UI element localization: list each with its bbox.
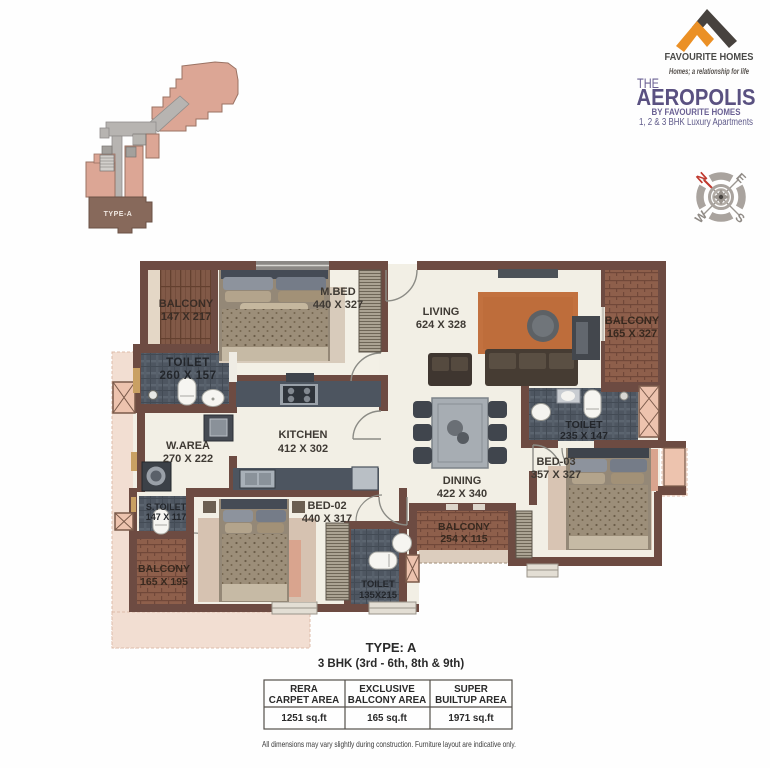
svg-text:FAVOURITE HOMES: FAVOURITE HOMES [665, 52, 754, 63]
svg-text:260 X 157: 260 X 157 [160, 370, 217, 382]
svg-text:CARPET AREA: CARPET AREA [269, 695, 339, 706]
svg-text:440 X 327: 440 X 327 [313, 299, 363, 311]
svg-text:LIVING: LIVING [423, 306, 460, 318]
svg-text:1, 2 & 3 BHK Luxury Apartments: 1, 2 & 3 BHK Luxury Apartments [639, 117, 753, 128]
svg-text:1971 sq.ft: 1971 sq.ft [448, 713, 494, 724]
svg-text:440 X 317: 440 X 317 [302, 513, 352, 525]
svg-text:357 X 327: 357 X 327 [531, 469, 581, 481]
svg-text:Homes; a relationship for life: Homes; a relationship for life [669, 66, 749, 76]
svg-text:TYPE: A: TYPE: A [366, 640, 417, 655]
svg-text:BALCONY: BALCONY [438, 521, 490, 533]
svg-text:SUPER: SUPER [454, 684, 488, 695]
svg-text:TYPE-A: TYPE-A [104, 211, 133, 218]
svg-text:422 X 340: 422 X 340 [437, 488, 487, 500]
svg-text:165 sq.ft: 165 sq.ft [367, 713, 407, 724]
svg-text:BUILTUP AREA: BUILTUP AREA [435, 695, 507, 706]
svg-text:RERA: RERA [290, 684, 318, 695]
svg-text:165 X 195: 165 X 195 [140, 576, 188, 588]
svg-text:All dimensions may vary slight: All dimensions may vary slightly during … [262, 739, 516, 749]
svg-text:147 X 117: 147 X 117 [146, 512, 187, 522]
svg-text:165 X 327: 165 X 327 [607, 328, 657, 340]
svg-text:BALCONY: BALCONY [605, 315, 660, 327]
svg-text:254 X 115: 254 X 115 [440, 533, 487, 545]
svg-text:W.AREA: W.AREA [166, 440, 210, 452]
svg-text:412 X 302: 412 X 302 [278, 443, 328, 455]
svg-text:135X215: 135X215 [359, 590, 398, 601]
svg-text:235 X 147: 235 X 147 [560, 430, 608, 442]
svg-text:KITCHEN: KITCHEN [279, 429, 328, 441]
svg-text:3 BHK (3rd - 6th, 8th & 9th): 3 BHK (3rd - 6th, 8th & 9th) [318, 658, 464, 670]
svg-text:EXCLUSIVE: EXCLUSIVE [359, 684, 415, 695]
svg-text:BALCONY AREA: BALCONY AREA [348, 695, 426, 706]
svg-text:624 X 328: 624 X 328 [416, 319, 466, 331]
svg-text:S.TOILET: S.TOILET [146, 502, 187, 512]
svg-text:1251 sq.ft: 1251 sq.ft [281, 713, 327, 724]
svg-text:TOILET: TOILET [166, 357, 210, 369]
svg-text:BED-02: BED-02 [307, 500, 346, 512]
svg-text:M.BED: M.BED [320, 286, 356, 298]
svg-text:270 X 222: 270 X 222 [163, 453, 213, 465]
svg-text:TOILET: TOILET [361, 579, 395, 590]
svg-text:BED-03: BED-03 [536, 456, 575, 468]
svg-text:147 X 217: 147 X 217 [161, 311, 211, 323]
svg-text:DINING: DINING [443, 475, 482, 487]
svg-text:BALCONY: BALCONY [138, 563, 190, 575]
svg-text:BALCONY: BALCONY [159, 298, 214, 310]
